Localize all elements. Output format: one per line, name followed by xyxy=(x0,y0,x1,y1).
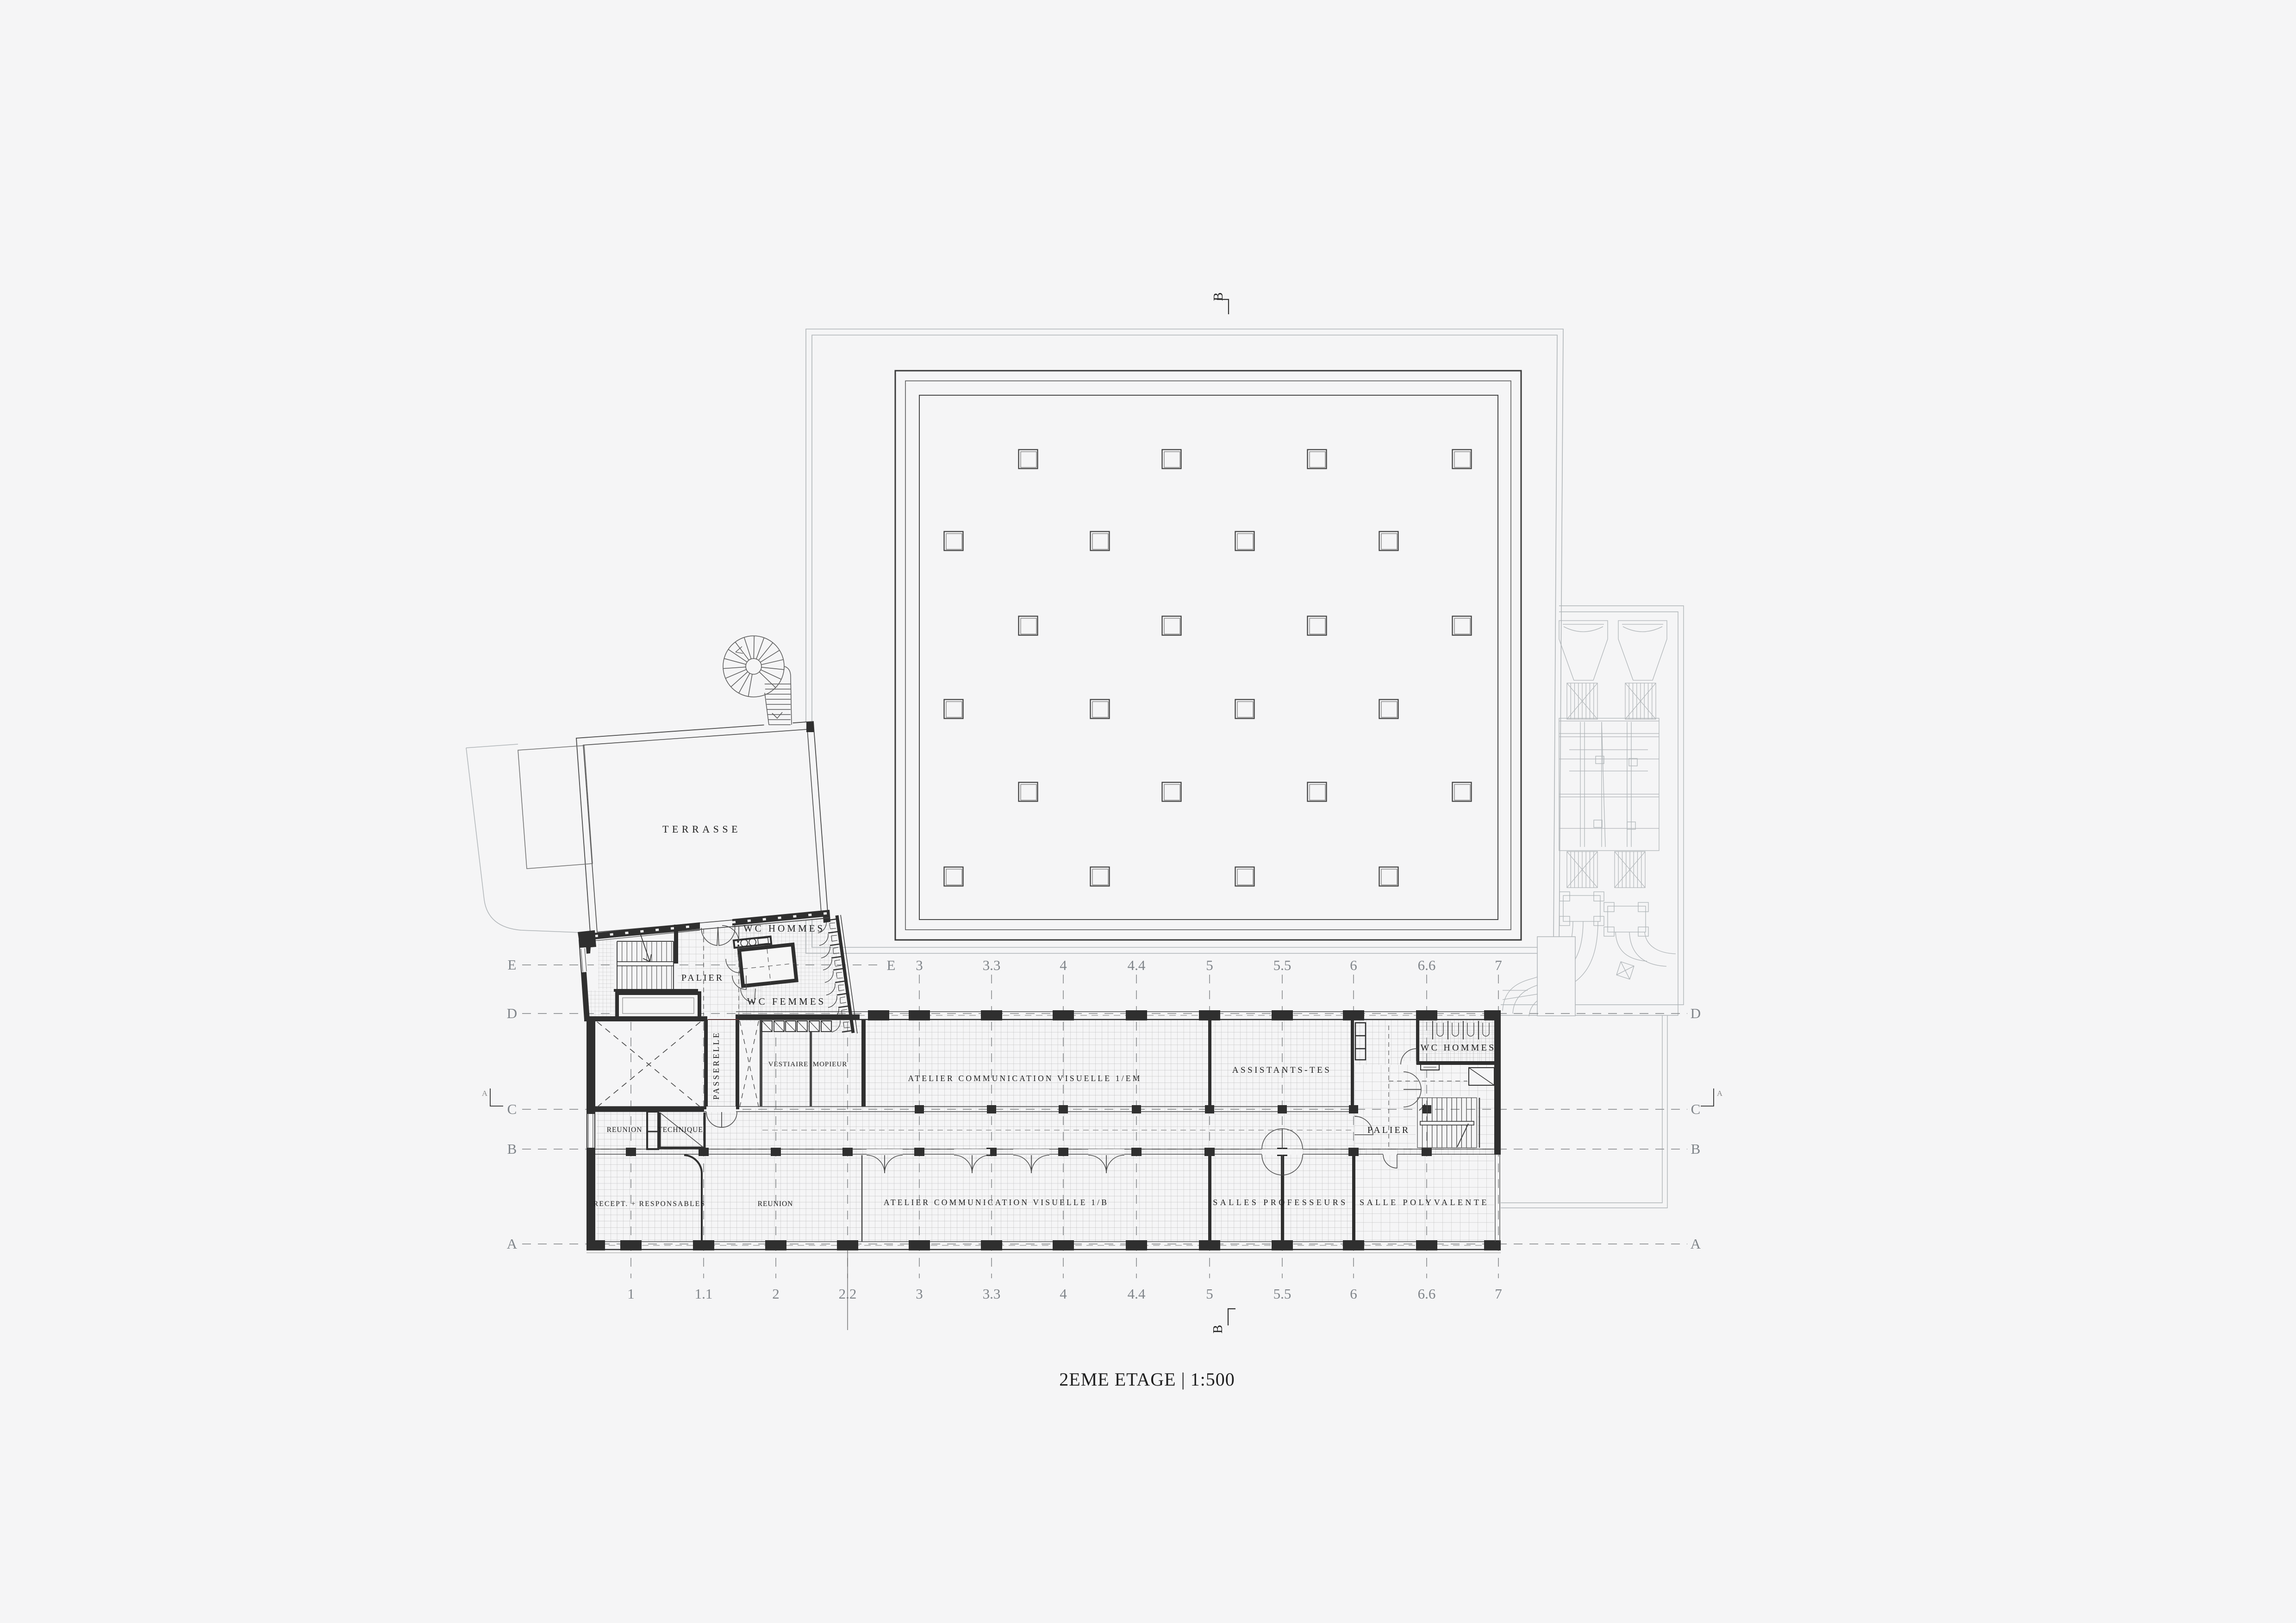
svg-text:4.4: 4.4 xyxy=(1128,1286,1146,1302)
svg-text:ATELIER COMMUNICATION VISUELLE: ATELIER COMMUNICATION VISUELLE 1/EM xyxy=(908,1074,1142,1083)
svg-text:MOPIEUR: MOPIEUR xyxy=(813,1061,848,1068)
svg-text:SALLES PROFESSEURS: SALLES PROFESSEURS xyxy=(1213,1198,1348,1207)
svg-text:5.5: 5.5 xyxy=(1273,1286,1291,1302)
svg-text:E: E xyxy=(508,957,517,973)
svg-text:1.1: 1.1 xyxy=(695,1286,713,1302)
svg-text:A: A xyxy=(1717,1089,1723,1098)
svg-text:6.6: 6.6 xyxy=(1418,1286,1436,1302)
svg-text:SALLE POLYVALENTE: SALLE POLYVALENTE xyxy=(1360,1198,1489,1207)
svg-text:RECEPT. + RESPONSABLES: RECEPT. + RESPONSABLES xyxy=(593,1200,705,1208)
svg-text:1: 1 xyxy=(627,1286,635,1302)
svg-text:A: A xyxy=(482,1089,488,1098)
svg-text:WC HOMMES: WC HOMMES xyxy=(743,923,825,934)
svg-text:5: 5 xyxy=(1206,957,1213,973)
svg-text:A: A xyxy=(1691,1236,1701,1252)
svg-text:6: 6 xyxy=(1350,957,1357,973)
svg-text:WC FEMMES: WC FEMMES xyxy=(747,996,826,1007)
svg-text:TERRASSE: TERRASSE xyxy=(662,823,741,835)
svg-text:D: D xyxy=(1691,1005,1701,1021)
svg-text:REUNION: REUNION xyxy=(607,1126,643,1134)
svg-text:E: E xyxy=(887,957,896,973)
svg-text:5: 5 xyxy=(1206,1286,1213,1302)
svg-text:2: 2 xyxy=(772,1286,780,1302)
svg-text:B: B xyxy=(1211,1325,1225,1334)
svg-text:C: C xyxy=(507,1101,517,1117)
svg-text:ASSISTANTS-TES: ASSISTANTS-TES xyxy=(1232,1065,1332,1075)
svg-text:3: 3 xyxy=(916,957,923,973)
svg-text:D: D xyxy=(507,1005,517,1021)
svg-text:B: B xyxy=(1691,1141,1701,1157)
svg-text:5.5: 5.5 xyxy=(1273,957,1291,973)
svg-text:PALIER: PALIER xyxy=(681,973,724,983)
svg-text:6.6: 6.6 xyxy=(1418,957,1436,973)
svg-text:3: 3 xyxy=(916,1286,923,1302)
svg-text:3.3: 3.3 xyxy=(983,957,1001,973)
svg-text:6: 6 xyxy=(1350,1286,1357,1302)
svg-text:VESTIAIRE: VESTIAIRE xyxy=(768,1061,809,1068)
svg-text:REUNION: REUNION xyxy=(758,1200,793,1208)
svg-text:4: 4 xyxy=(1060,957,1067,973)
svg-text:WC HOMMES: WC HOMMES xyxy=(1421,1043,1496,1053)
svg-text:C: C xyxy=(1691,1101,1701,1117)
svg-text:4.4: 4.4 xyxy=(1128,957,1146,973)
svg-text:PASSERELLE: PASSERELLE xyxy=(711,1031,721,1100)
svg-text:7: 7 xyxy=(1495,957,1502,973)
svg-text:B: B xyxy=(507,1141,517,1157)
svg-text:PALIER: PALIER xyxy=(1367,1125,1410,1135)
svg-text:ATELIER COMMUNICATION VISUELLE: ATELIER COMMUNICATION VISUELLE 1/B xyxy=(884,1198,1109,1207)
svg-text:4: 4 xyxy=(1060,1286,1067,1302)
svg-text:3.3: 3.3 xyxy=(983,1286,1001,1302)
svg-text:2EME ETAGE | 1:500: 2EME ETAGE | 1:500 xyxy=(1059,1369,1235,1390)
svg-text:TECHNIQUE: TECHNIQUE xyxy=(658,1126,703,1134)
svg-text:A: A xyxy=(507,1236,518,1252)
svg-text:7: 7 xyxy=(1495,1286,1502,1302)
